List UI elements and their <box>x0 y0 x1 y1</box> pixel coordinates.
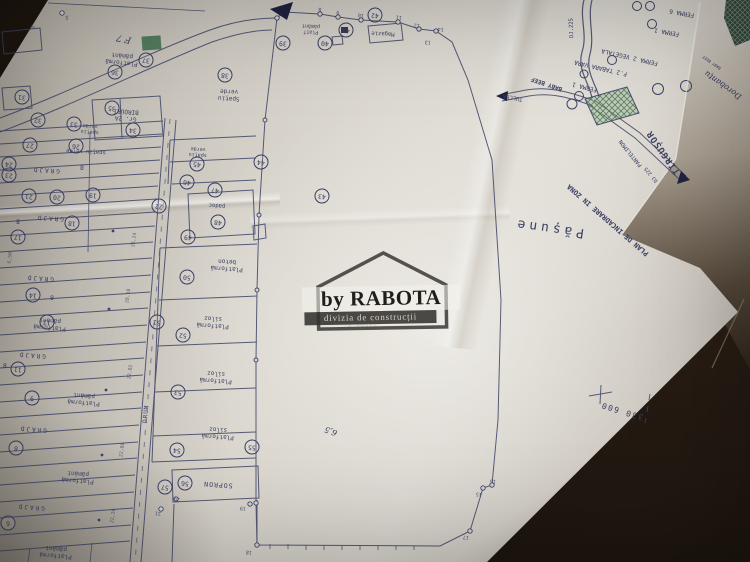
parcel-number-badge: 34 <box>125 122 141 138</box>
parcel-number-badge: 19 <box>85 187 101 203</box>
map-label: 20 <box>174 495 181 501</box>
parcel-number-badge: 55 <box>244 439 260 455</box>
map-label: Platformă pământ <box>31 542 80 560</box>
parcel-number-badge: 14 <box>25 287 41 303</box>
map-label: Platformă beton <box>201 255 254 272</box>
parcel-number-badge: 39 <box>275 35 291 51</box>
map-label: F.2 TABARA VARA <box>574 58 628 77</box>
map-label: Spațiu verde <box>210 86 249 102</box>
parcel-number-badge: 40 <box>317 35 333 51</box>
parcel-number-badge: 43 <box>314 188 330 204</box>
parcel-number-badge: 45 <box>189 156 205 172</box>
parcel-number-badge: 47 <box>207 182 223 198</box>
parcel-number-badge: 38 <box>217 67 233 83</box>
map-label: 16 <box>490 477 497 483</box>
map-label: Pășune <box>513 215 585 240</box>
map-label: 12 <box>414 21 421 27</box>
map-label: DJ.225 <box>568 18 575 38</box>
map-label: 28,18 <box>125 288 132 303</box>
map-label: 21 <box>155 509 162 515</box>
watermark-logo: by RABOTA divizia de construcții <box>299 247 462 336</box>
map-label: 50 <box>30 23 36 29</box>
map-label: 6,50 <box>8 252 15 264</box>
parcel-number-badge: 20 <box>49 189 65 205</box>
map-label: Platformă siloz <box>187 312 240 329</box>
parcel-number-badge: 9 <box>24 390 40 406</box>
map-label: 8 <box>318 5 322 11</box>
map-label: 6,5 <box>323 425 338 438</box>
parcel-number-badge: 54 <box>169 442 185 458</box>
parcel-number-badge: 46 <box>179 174 195 190</box>
map-label: 18 <box>246 548 253 554</box>
map-label: 19 <box>240 504 247 510</box>
map-label: FERMA 2 VEGETALA <box>601 46 659 66</box>
parcel-number-badge: 18 <box>64 215 80 231</box>
parcel-number-badge: 50 <box>179 269 195 285</box>
parcel-number-badge: 31 <box>14 89 30 105</box>
map-label: 330 600 <box>600 400 645 422</box>
map-label: B <box>80 162 84 169</box>
map-label: FERMA 1 <box>654 25 680 36</box>
map-label: Platf pământ <box>293 22 329 35</box>
map-label: B <box>3 360 7 367</box>
parcel-number-badge: 37 <box>138 52 154 68</box>
map-label: B <box>16 216 20 223</box>
map-label: DJ 225 <box>644 165 660 183</box>
map-label: 17 <box>463 533 470 539</box>
parcel-number-badge: 8 <box>8 440 24 456</box>
map-label: GRAJD <box>36 213 64 222</box>
map-label: 14 <box>438 25 445 31</box>
map-label: 9 <box>336 8 340 14</box>
parcel-number-badge: 6 <box>0 515 16 531</box>
map-label: GRAJD <box>32 165 60 174</box>
map-label: B <box>50 292 54 299</box>
map-label: Magazie <box>371 29 394 37</box>
map-label: Platformă siloz <box>190 367 243 384</box>
parcel-number-badge: 56 <box>177 475 193 491</box>
map-label: Dorobanțu <box>703 69 744 101</box>
map-label: FERMA 1 <box>572 80 598 93</box>
map-label: Platformă siloz <box>192 423 245 440</box>
map-label: GRAJD <box>19 423 48 432</box>
map-label: BABY BEEF <box>531 74 564 91</box>
parcel-number-badge: 49 <box>180 229 196 245</box>
map-label: F 7 <box>116 31 133 44</box>
parcel-number-badge: 32 <box>30 112 46 128</box>
map-label: 13 <box>425 38 432 44</box>
map-label: 22,02 <box>127 364 134 379</box>
map-label: GRAJD <box>26 273 54 282</box>
map-label: 26,24 <box>131 232 138 247</box>
parcel-number-badge: 48 <box>210 214 226 230</box>
parcel-number-badge: 22 <box>151 198 167 214</box>
map-label: FERMA 6 <box>669 6 695 17</box>
map-label: GRAJD <box>17 501 46 510</box>
map-label: PLAN DE INCADRARE IN ZONA <box>566 182 651 257</box>
parcel-number-badge: 52 <box>175 327 191 343</box>
map-label: DRUM <box>143 404 152 423</box>
parcel-number-badge: 53 <box>170 384 186 400</box>
map-label: BABY BEEF <box>702 54 722 70</box>
parcel-number-badge: 42 <box>367 7 383 23</box>
map-label: SOPRON <box>203 479 233 489</box>
map-label: 22,80 <box>119 442 126 457</box>
map-label: 11 <box>396 13 403 19</box>
map-label: Platformă pământ <box>53 467 102 485</box>
map-label: padoc <box>209 201 226 208</box>
parcel-number-badge: 27 <box>22 137 38 153</box>
parcel-number-badge: 44 <box>253 154 269 170</box>
watermark-division-text: divizia de construcții <box>304 310 436 325</box>
map-label: 15 <box>476 490 483 496</box>
map-label: 5 <box>65 13 69 19</box>
parcel-number-badge: 17 <box>10 229 26 245</box>
watermark-brand-text: by RABOTA <box>302 285 460 313</box>
parcel-number-badge: 41 <box>338 22 354 38</box>
parcel-number-badge: 21 <box>21 188 37 204</box>
map-label: Platformă pământ <box>59 389 108 407</box>
parcel-number-badge: 51 <box>149 314 165 330</box>
map-label: GRAJD <box>18 349 47 358</box>
map-label: 10 <box>358 11 365 17</box>
map-label: PANTELIMON <box>618 138 644 168</box>
map-label: 22,20 <box>110 508 117 523</box>
map-label: TULCEA <box>503 92 524 102</box>
parcel-number-badge: 57 <box>157 479 173 495</box>
parcel-number-badge: 11 <box>10 361 26 377</box>
site-plan-photo: F 7Platformă pământGr. 2A BIROURIspațiu … <box>0 0 750 562</box>
parcel-number-badge: 36 <box>107 64 123 80</box>
